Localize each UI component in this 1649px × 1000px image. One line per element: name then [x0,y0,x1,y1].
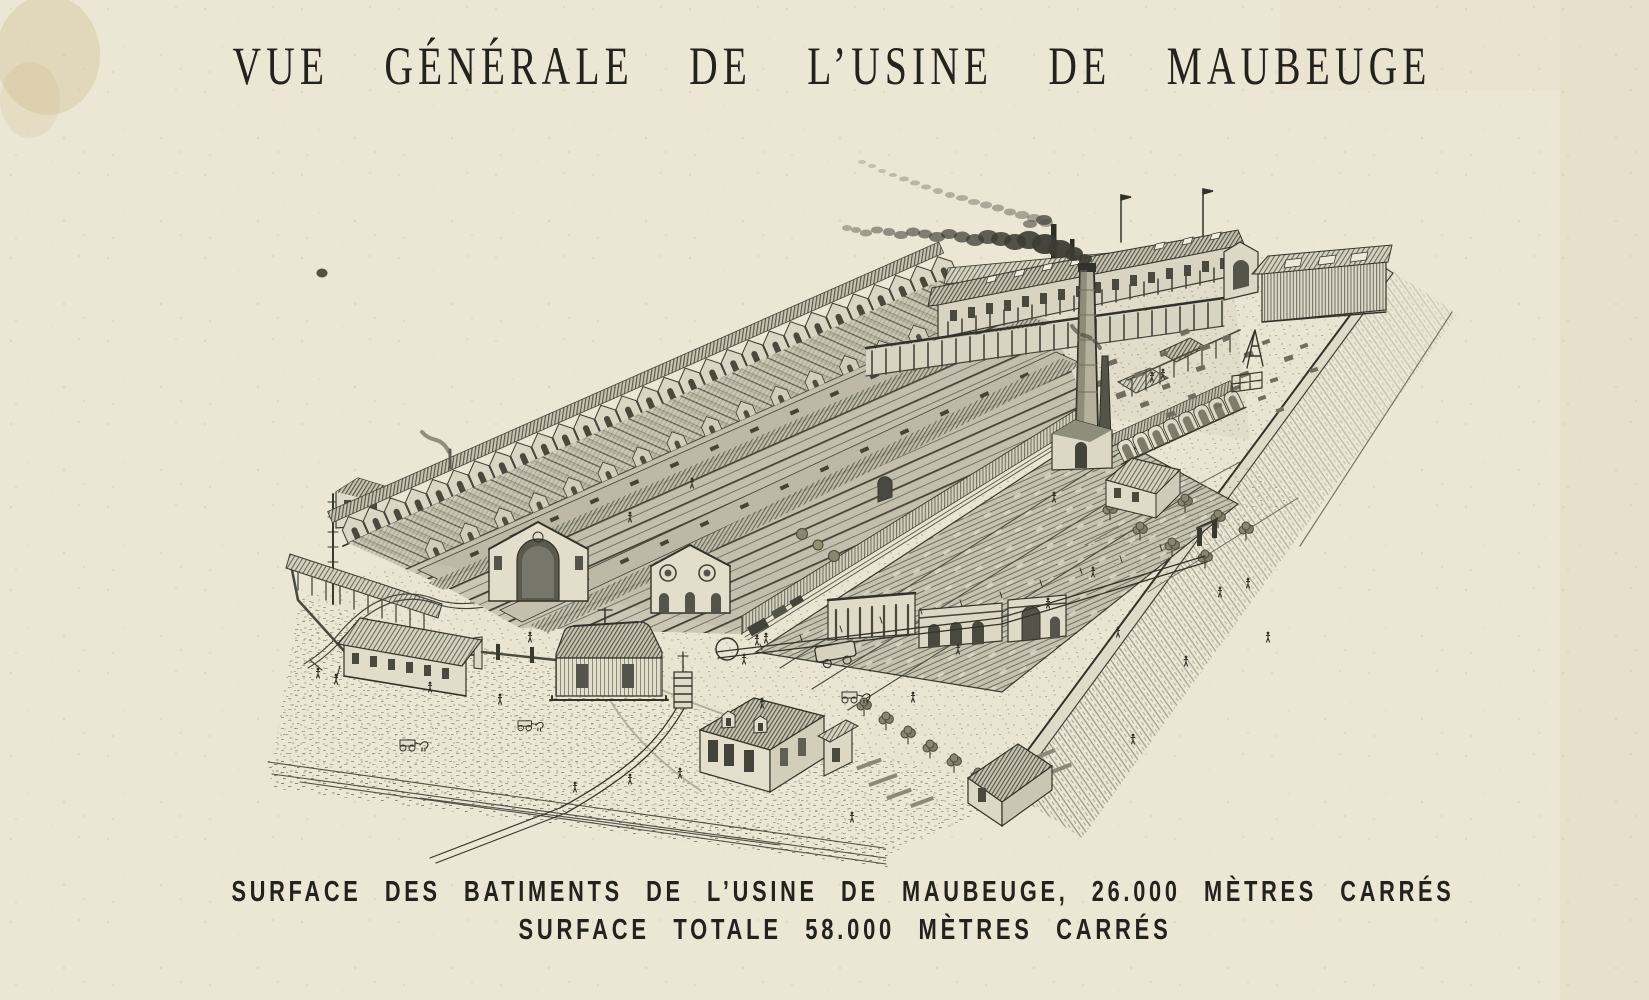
svg-text:SURFACE TOTALE 58.000 MÈTRES C: SURFACE TOTALE 58.000 MÈTRES CARRÉS [519,912,1172,946]
svg-text:VUE GÉNÉRALE DE L’USINE DE MAU: VUE GÉNÉRALE DE L’USINE DE MAUBEUGE [233,36,1432,96]
svg-text:SURFACE DES BATIMENTS DE L’USI: SURFACE DES BATIMENTS DE L’USINE DE MAUB… [232,874,1455,908]
